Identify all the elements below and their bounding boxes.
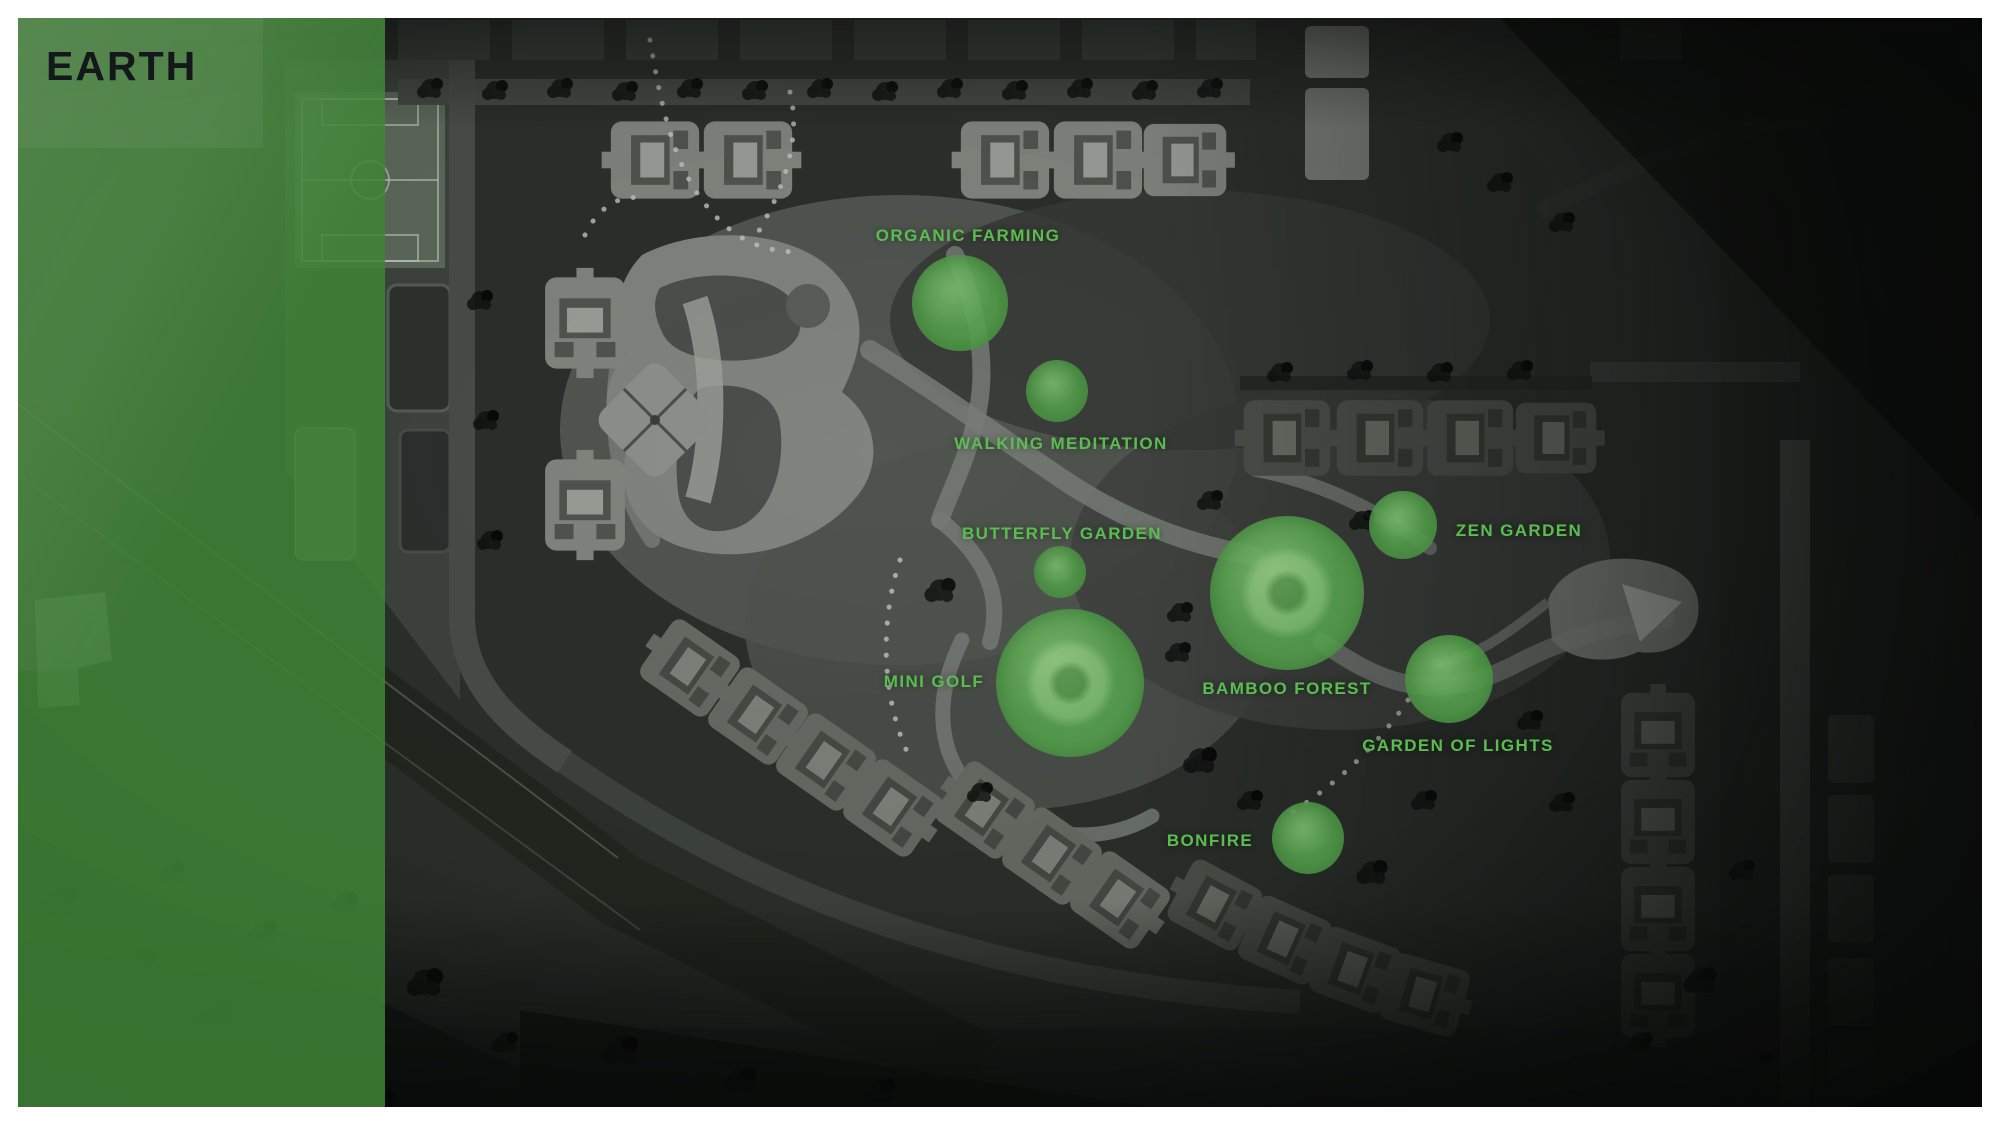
amenity-label-garden-of-lights: GARDEN OF LIGHTS <box>1362 736 1553 756</box>
amenity-circle-bamboo-forest[interactable] <box>1210 516 1364 670</box>
amenity-circle-garden-of-lights[interactable] <box>1405 635 1493 723</box>
amenity-label-organic-farming: ORGANIC FARMING <box>876 226 1060 246</box>
site-plan-stage: EARTH ORGANIC FARMINGWALKING MEDITATIONB… <box>18 18 1982 1107</box>
amenity-circle-bonfire[interactable] <box>1272 802 1344 874</box>
masterplan-slide: EARTH ORGANIC FARMINGWALKING MEDITATIONB… <box>0 0 2000 1125</box>
amenity-label-zen-garden: ZEN GARDEN <box>1456 521 1582 541</box>
earth-theme-panel <box>18 18 385 1107</box>
amenity-circle-butterfly-garden[interactable] <box>1034 546 1086 598</box>
amenity-label-bamboo-forest: BAMBOO FOREST <box>1202 679 1371 699</box>
page-title: EARTH <box>46 44 197 89</box>
amenity-label-walking-meditation: WALKING MEDITATION <box>954 434 1167 454</box>
amenity-circle-zen-garden[interactable] <box>1369 491 1437 559</box>
amenity-label-mini-golf: MINI GOLF <box>884 672 984 692</box>
amenity-circle-organic-farming[interactable] <box>912 255 1008 351</box>
amenity-circle-mini-golf[interactable] <box>996 609 1144 757</box>
amenity-label-butterfly-garden: BUTTERFLY GARDEN <box>962 524 1162 544</box>
amenity-label-bonfire: BONFIRE <box>1167 831 1253 851</box>
amenity-circle-walking-meditation[interactable] <box>1026 360 1088 422</box>
